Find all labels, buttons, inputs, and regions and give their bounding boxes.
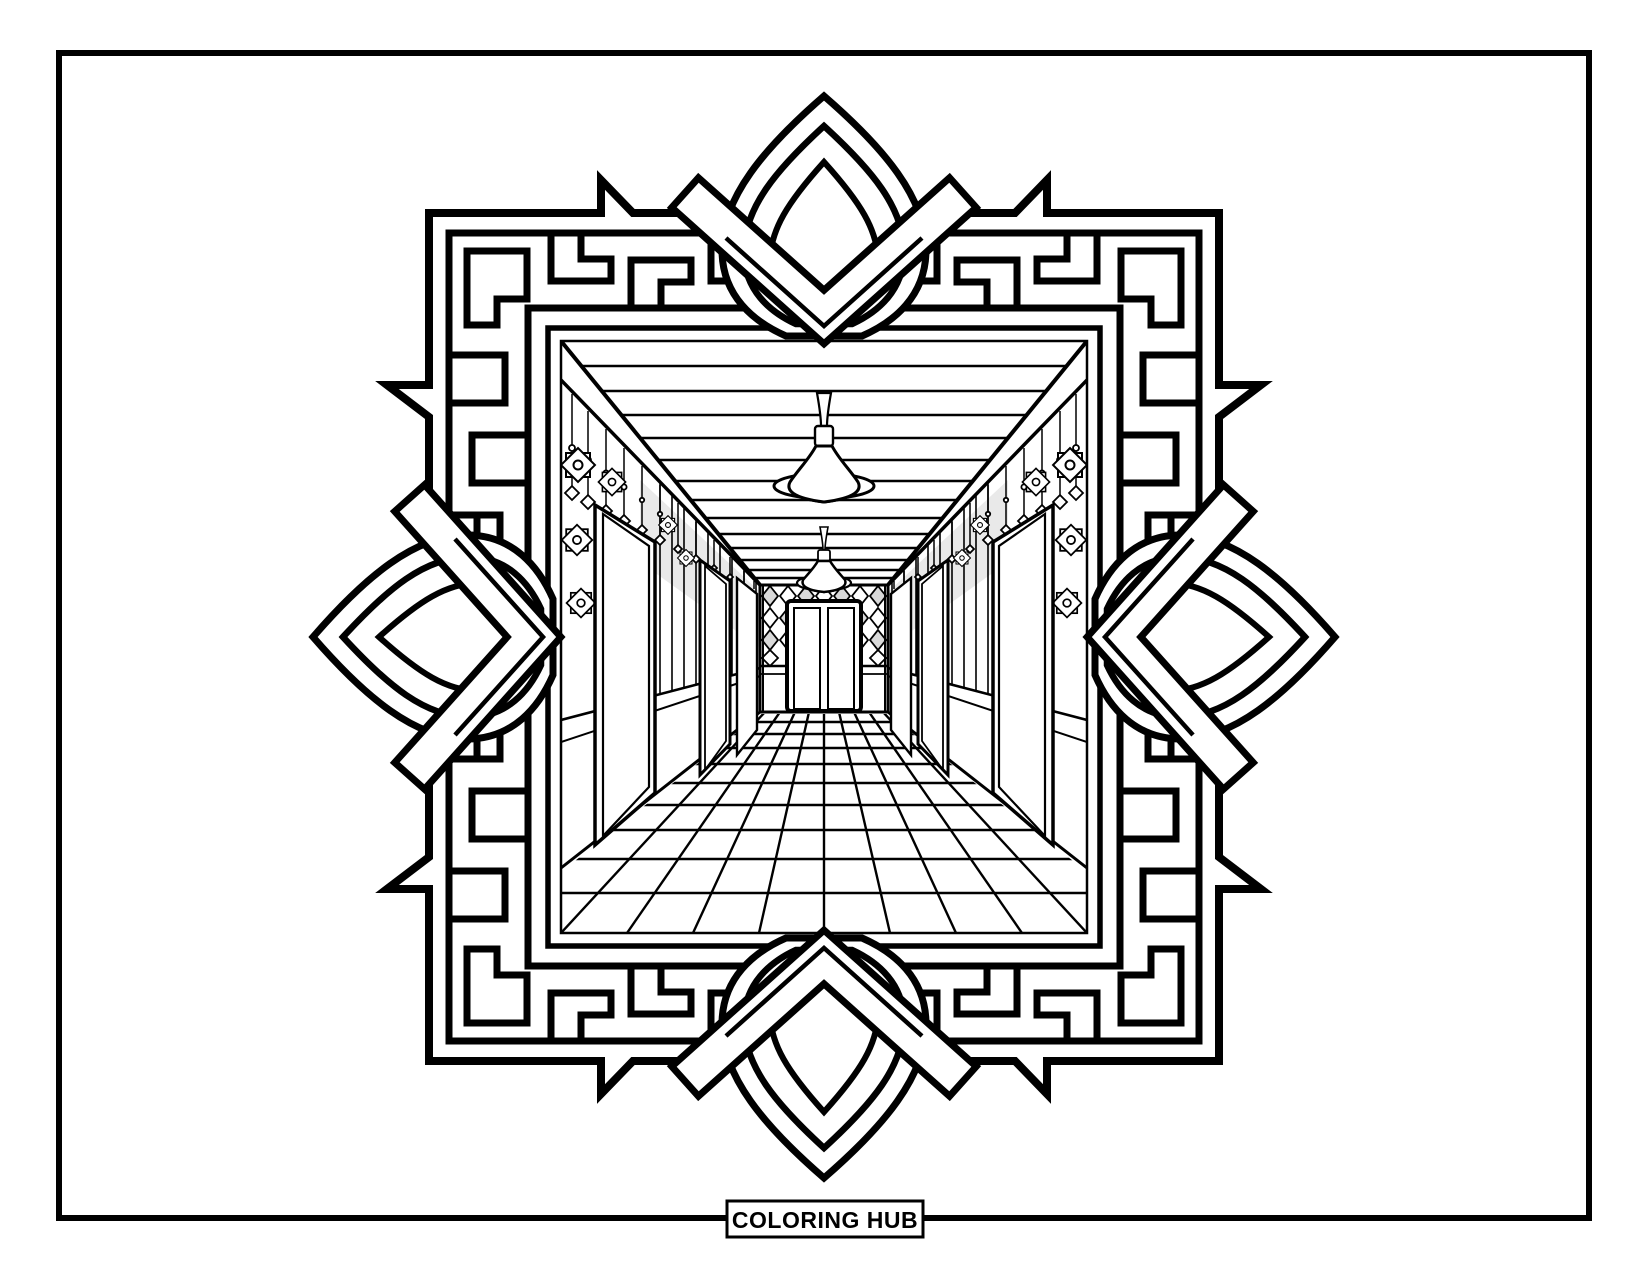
pendant-lamps [774, 393, 874, 592]
hallway-right-wall [888, 380, 1087, 868]
hallway-end-wall [760, 585, 888, 712]
pendant-lamp-large [774, 393, 874, 502]
brand-plate: COLORING HUB [727, 1201, 923, 1237]
hallway-scene [561, 341, 1087, 933]
ornament-left [313, 513, 553, 761]
brand-label: COLORING HUB [732, 1207, 918, 1233]
ornament-bottom [700, 938, 948, 1178]
coloring-page-art: COLORING HUB [0, 0, 1650, 1275]
ornament-top [700, 96, 948, 336]
ornament-right [1095, 513, 1335, 761]
coloring-page: COLORING HUB [0, 0, 1650, 1275]
end-double-door [787, 601, 861, 711]
